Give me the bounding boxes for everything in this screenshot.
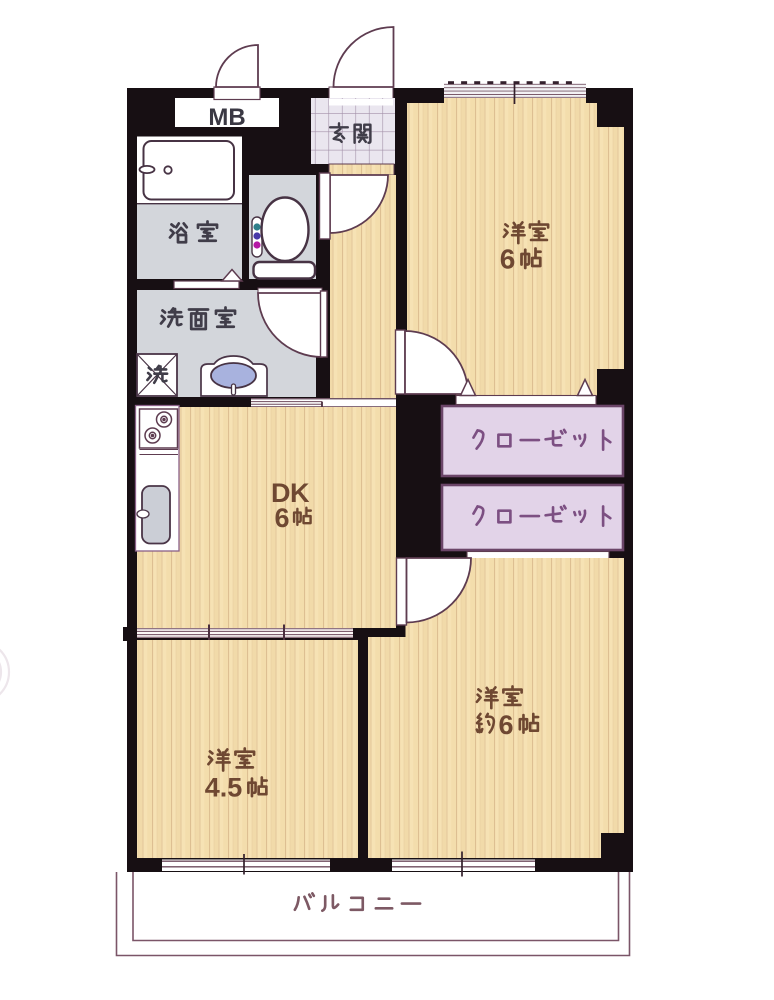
svg-text:MB: MB [208, 104, 245, 131]
svg-text:4.5: 4.5 [205, 773, 243, 803]
svg-text:6: 6 [500, 244, 516, 275]
svg-text:6: 6 [498, 710, 513, 740]
svg-text:6: 6 [274, 503, 289, 533]
